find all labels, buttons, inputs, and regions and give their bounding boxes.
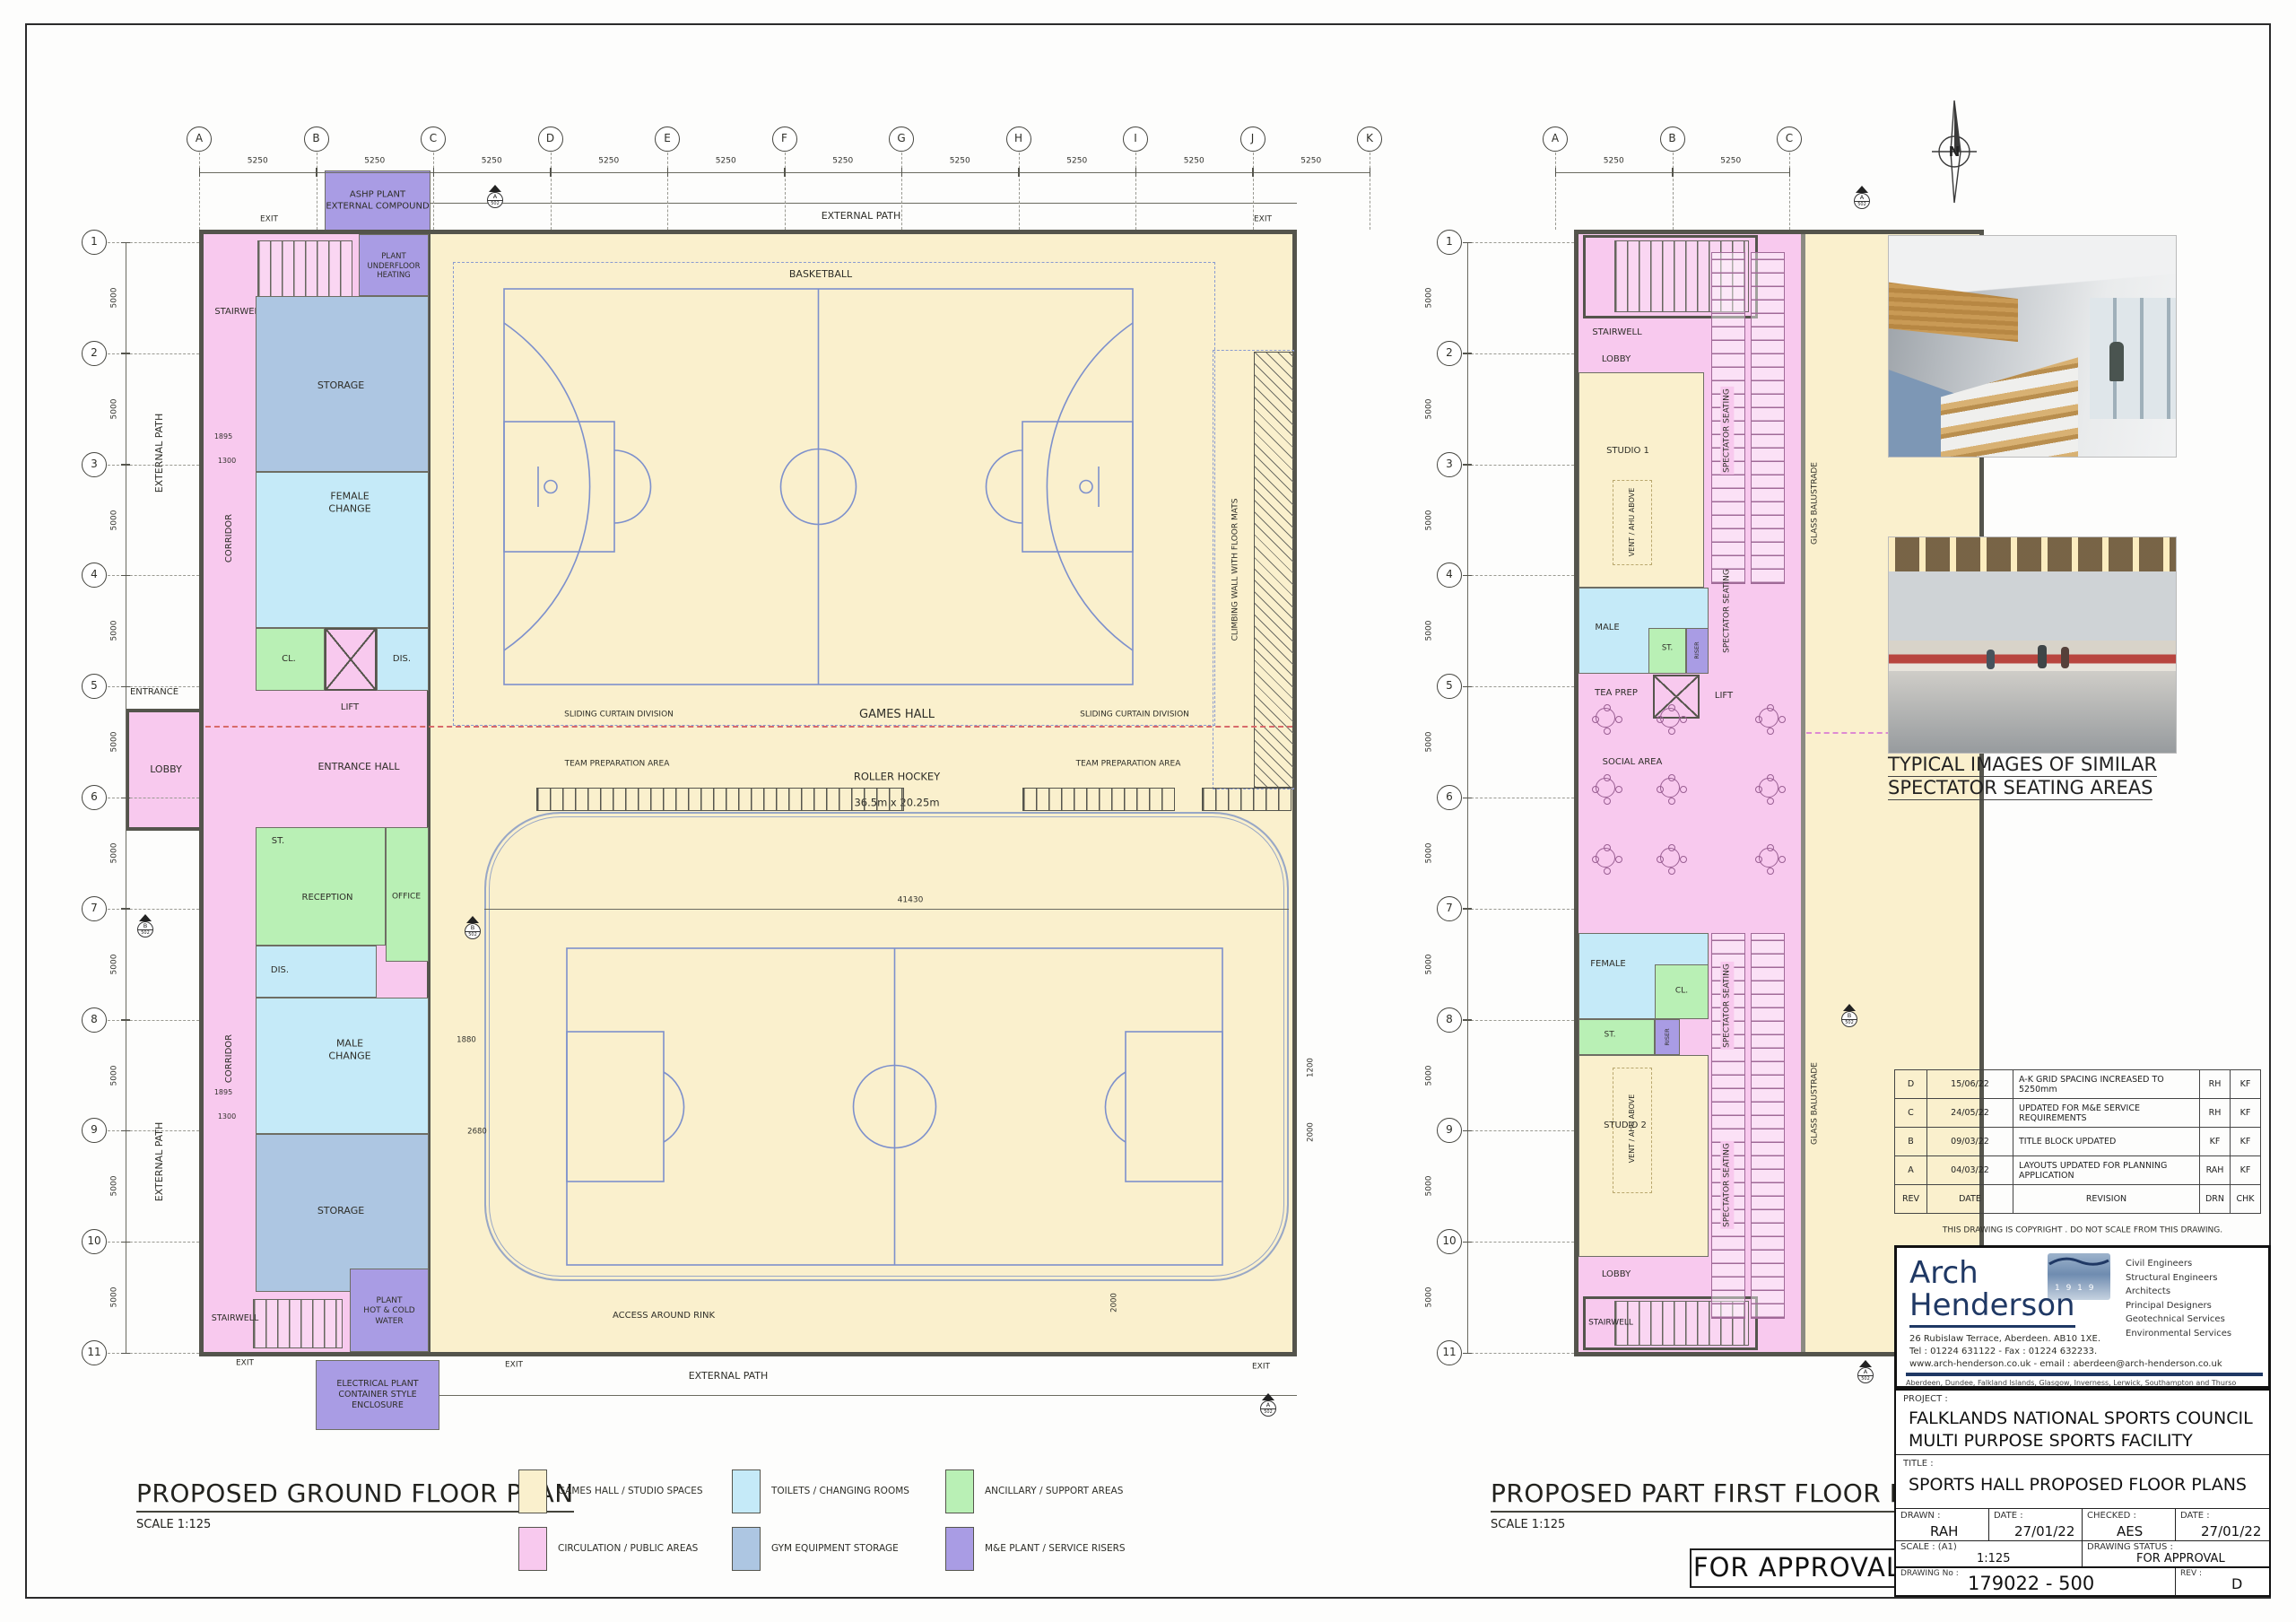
section-marker-tri-3 bbox=[1262, 1393, 1274, 1400]
ff-social-chair-1-1-2 bbox=[1668, 774, 1675, 781]
gf-grid-col-B: B bbox=[304, 126, 329, 152]
firm-web: www.arch-henderson.co.uk - email : aberd… bbox=[1909, 1359, 2222, 1369]
gf-dim-2680: 2680 bbox=[467, 1128, 487, 1138]
photo1-windows bbox=[2090, 298, 2176, 419]
gf-grid-row-7: 7 bbox=[82, 896, 107, 921]
tb-checked-value: AES bbox=[2117, 1523, 2143, 1539]
firm-name-arch: Arch bbox=[1909, 1255, 1979, 1291]
gf-plant-hot-cold-label: PLANT HOT & COLD WATER bbox=[363, 1296, 414, 1327]
ff-grid-rowline-7 bbox=[1471, 1020, 1574, 1021]
gf-grid-col-A: A bbox=[187, 126, 212, 152]
firm-service-4: Geotechnical Services bbox=[2126, 1312, 2231, 1327]
ff-studio1-label: STUDIO 1 bbox=[1606, 446, 1649, 458]
gf-grid-dim-8: 5250 bbox=[1184, 156, 1205, 166]
ff-grid-rowline-6 bbox=[1471, 909, 1574, 910]
ff-grid-dim-0: 5250 bbox=[1604, 156, 1624, 166]
gf-games-hall-label: GAMES HALL bbox=[859, 708, 935, 722]
photo2-ceiling-lights bbox=[1889, 537, 2176, 571]
for-approval-stamp: FOR APPROVAL bbox=[1690, 1548, 1905, 1588]
gf-grid-rowtick-1 bbox=[121, 353, 130, 354]
ff-grid-rowtick-10 bbox=[1463, 1353, 1472, 1355]
gf-plan-scale: SCALE 1:125 bbox=[136, 1518, 211, 1531]
rev-cell-1-2: UPDATED FOR M&E SERVICE REQUIREMENTS bbox=[2013, 1099, 2200, 1128]
ff-grid-rowtick-2 bbox=[1463, 464, 1472, 466]
ff-social-chair-2-0-3 bbox=[1604, 868, 1611, 875]
ff-grid-rowtick-4 bbox=[1463, 686, 1472, 688]
ff-grid-rowdim-6: 5000 bbox=[1424, 954, 1434, 974]
tb-project-row: PROJECT : FALKLANDS NATIONAL SPORTS COUN… bbox=[1896, 1391, 2269, 1455]
gf-grid-col-H: H bbox=[1006, 126, 1031, 152]
gf-grid-tick-5 bbox=[784, 168, 786, 177]
ff-grid-row-10: 10 bbox=[1437, 1229, 1462, 1254]
ff-social-chair-1-0-2 bbox=[1604, 774, 1611, 781]
gf-stairwell-bottom-label: STAIRWELL bbox=[212, 1313, 259, 1324]
gf-dim-1895-bot: 1895 bbox=[214, 1088, 232, 1097]
gf-grid-col-G: G bbox=[889, 126, 914, 152]
gf-grid-colline-9 bbox=[1253, 153, 1254, 230]
firm-block: Arch 1 9 1 9 Henderson Civil EngineersSt… bbox=[1894, 1245, 2271, 1389]
ff-grid-rowdim-3: 5000 bbox=[1424, 621, 1434, 641]
gf-plan-title: PROPOSED GROUND FLOOR PLAN bbox=[136, 1478, 574, 1513]
ff-grid-row-9: 9 bbox=[1437, 1118, 1462, 1143]
gf-grid-col-E: E bbox=[655, 126, 680, 152]
rev-cell-1-0: C bbox=[1895, 1099, 1927, 1128]
gf-grid-row-8: 8 bbox=[82, 1007, 107, 1033]
gf-climbing-wall-label: CLIMBING WALL WITH FLOOR MATS bbox=[1231, 499, 1240, 641]
ff-social-chair-2-0-2 bbox=[1604, 844, 1611, 851]
gf-grid-row-6: 6 bbox=[82, 785, 107, 810]
rev-cell-0-2: A-K GRID SPACING INCREASED TO 5250mm bbox=[2013, 1070, 2200, 1099]
marker-letter: A bbox=[488, 193, 502, 200]
ff-lobby-top-label: LOBBY bbox=[1602, 354, 1631, 366]
ff-social-chair-2-0-0 bbox=[1592, 856, 1599, 863]
rev-cell-3-3: RAH bbox=[2200, 1156, 2231, 1185]
gf-entrance-label: ENTRANCE bbox=[130, 687, 178, 699]
ff-grid-rowline-3 bbox=[1471, 575, 1574, 576]
revision-table: D15/06/22A-K GRID SPACING INCREASED TO 5… bbox=[1894, 1069, 2261, 1214]
ff-grid-tick-1 bbox=[1672, 168, 1674, 177]
gf-grid-rowtick-2 bbox=[121, 464, 130, 466]
tb-dwg-cell: DRAWING No : 179022 - 500 bbox=[1896, 1568, 2176, 1596]
firm-name-henderson: Henderson bbox=[1909, 1287, 2075, 1328]
firm-service-0: Civil Engineers bbox=[2126, 1257, 2231, 1271]
firm-service-5: Environmental Services bbox=[2126, 1327, 2231, 1341]
gf-access-around-rink: ACCESS AROUND RINK bbox=[613, 1311, 715, 1322]
rev-cell-2-3: KF bbox=[2200, 1128, 2231, 1156]
gf-basketball-label: BASKETBALL bbox=[789, 268, 852, 281]
gf-grid-dim-5: 5250 bbox=[832, 156, 853, 166]
gf-cl-top-label: CL. bbox=[282, 654, 296, 666]
ff-grid-row-8: 8 bbox=[1437, 1007, 1462, 1033]
tb-drawn-value: RAH bbox=[1930, 1523, 1958, 1539]
ff-social-chair-1-2-2 bbox=[1767, 774, 1774, 781]
spectator-seating-photo-2 bbox=[1888, 536, 2177, 754]
gf-grid-rowtick-4 bbox=[121, 686, 130, 688]
gf-grid-row-3: 3 bbox=[82, 452, 107, 477]
gf-dim-1300-top: 1300 bbox=[218, 457, 236, 466]
ff-social-chair-0-2-1 bbox=[1779, 716, 1786, 723]
svg-text:N: N bbox=[1949, 144, 1961, 160]
legend-label-4: GYM EQUIPMENT STORAGE bbox=[771, 1543, 899, 1554]
ff-spectator-label-2: SPECTATOR SEATING bbox=[1722, 569, 1732, 653]
firm-logo-wave bbox=[2048, 1253, 2110, 1271]
gf-grid-rowdim-7: 5000 bbox=[109, 1065, 119, 1086]
ff-lobby-bottom-label: LOBBY bbox=[1602, 1269, 1631, 1281]
gf-grid-colline-3 bbox=[551, 153, 552, 230]
ff-social-chair-2-2-1 bbox=[1779, 856, 1786, 863]
firm-service-2: Architects bbox=[2126, 1285, 2231, 1299]
ff-glass-balustrade-wall bbox=[1801, 234, 1805, 1352]
ff-social-chair-2-1-3 bbox=[1668, 868, 1675, 875]
ff-tea-prep-label: TEA PREP bbox=[1595, 688, 1638, 700]
ff-social-chair-0-1-3 bbox=[1668, 728, 1675, 735]
gf-lift-label: LIFT bbox=[341, 702, 359, 714]
ff-social-chair-0-0-0 bbox=[1592, 716, 1599, 723]
tb-date2-value: 27/01/22 bbox=[2201, 1523, 2261, 1539]
ff-st-2 bbox=[1578, 1019, 1655, 1055]
ff-grid-row-1: 1 bbox=[1437, 230, 1462, 255]
gf-grid-tick-1 bbox=[316, 168, 317, 177]
section-marker-circle-6: A502 bbox=[1857, 1367, 1874, 1383]
ff-grid-tick-0 bbox=[1555, 168, 1557, 177]
ff-grid-rowtick-9 bbox=[1463, 1242, 1472, 1243]
gf-bench-1 bbox=[536, 788, 904, 811]
tb-checked-label: CHECKED : bbox=[2087, 1511, 2136, 1521]
gf-grid-colline-1 bbox=[317, 153, 317, 230]
ff-grid-rowdim-0: 5000 bbox=[1424, 287, 1434, 308]
legend-label-5: M&E PLANT / SERVICE RISERS bbox=[985, 1543, 1126, 1554]
firm-tel: Tel : 01224 631122 - Fax : 01224 632233. bbox=[1909, 1347, 2097, 1356]
gf-grid-tick-10 bbox=[1370, 168, 1371, 177]
gf-grid-tick-4 bbox=[667, 168, 669, 177]
tb-status-cell: DRAWING STATUS : FOR APPROVAL bbox=[2083, 1541, 2270, 1566]
ff-social-chair-0-2-0 bbox=[1755, 716, 1762, 723]
legend-swatch-4 bbox=[732, 1527, 761, 1571]
marker-number: 502 bbox=[1842, 1019, 1857, 1025]
rev-cell-0-3: RH bbox=[2200, 1070, 2231, 1099]
rink-court bbox=[565, 946, 1224, 1267]
section-marker-tri-0 bbox=[139, 914, 152, 921]
ff-social-area-label: SOCIAL AREA bbox=[1603, 757, 1663, 769]
firm-service-3: Principal Designers bbox=[2126, 1299, 2231, 1313]
marker-number: 502 bbox=[465, 931, 480, 937]
tb-date1-cell: DATE : 27/01/22 bbox=[1989, 1509, 2083, 1540]
tb-scale-row: SCALE : (A1) 1:125 DRAWING STATUS : FOR … bbox=[1896, 1541, 2269, 1568]
ff-st-2-label: ST. bbox=[1604, 1030, 1615, 1040]
rev-cell-3-4: KF bbox=[2231, 1156, 2261, 1185]
gf-grid-rowtick-7 bbox=[121, 1019, 130, 1021]
ff-grid-rowline-9 bbox=[1471, 1242, 1574, 1243]
rev-cell-2-0: B bbox=[1895, 1128, 1927, 1156]
rev-header-3: DRN bbox=[2200, 1185, 2231, 1214]
tb-date2-label: DATE : bbox=[2180, 1511, 2210, 1521]
photo2-wall-band bbox=[1889, 641, 2176, 671]
photo1-benches bbox=[1941, 357, 2079, 457]
rev-cell-0-1: 15/06/22 bbox=[1927, 1070, 2013, 1099]
section-marker-circle-5: B502 bbox=[1841, 1011, 1857, 1027]
firm-offices: Aberdeen, Dundee, Falkland Islands, Glas… bbox=[1906, 1379, 2236, 1387]
ff-grid-row-6: 6 bbox=[1437, 785, 1462, 810]
legend-label-2: ANCILLARY / SUPPORT AREAS bbox=[985, 1486, 1123, 1496]
ff-glass-balustrade-label-1: GLASS BALUSTRADE bbox=[1810, 462, 1820, 545]
gf-grid-colline-7 bbox=[1019, 153, 1020, 230]
marker-letter: A bbox=[1261, 1401, 1275, 1408]
rev-cell-3-1: 04/03/22 bbox=[1927, 1156, 2013, 1185]
ff-spectator-label-1: SPECTATOR SEATING bbox=[1720, 387, 1734, 475]
rev-cell-3-0: A bbox=[1895, 1156, 1927, 1185]
ff-glass-balustrade-label-2: GLASS BALUSTRADE bbox=[1810, 1062, 1820, 1145]
gf-dis-top-label: DIS. bbox=[393, 654, 411, 666]
rev-cell-1-3: RH bbox=[2200, 1099, 2231, 1128]
ff-male-label: MALE bbox=[1595, 623, 1619, 634]
gf-grid-rowtick-0 bbox=[121, 242, 130, 244]
gf-grid-rowdim-3: 5000 bbox=[109, 621, 119, 641]
rev-header-1: DATE bbox=[1927, 1185, 2013, 1214]
marker-letter: B bbox=[465, 924, 480, 931]
gf-grid-colline-4 bbox=[667, 153, 668, 230]
ff-social-chair-1-2-1 bbox=[1779, 786, 1786, 793]
gf-sliding-curtain-label-right: SLIDING CURTAIN DIVISION bbox=[1080, 710, 1189, 719]
gf-external-path-top-label: EXTERNAL PATH bbox=[822, 210, 901, 222]
gf-grid-col-C: C bbox=[421, 126, 446, 152]
firm-address: 26 Rubislaw Terrace, Aberdeen. AB10 1XE. bbox=[1909, 1334, 2100, 1344]
ff-grid-col-A: A bbox=[1543, 126, 1568, 152]
ff-cl-label: CL. bbox=[1675, 986, 1688, 996]
gf-lift-shaft bbox=[325, 628, 377, 691]
gf-grid-dim-7: 5250 bbox=[1066, 156, 1087, 166]
section-marker-tri-5 bbox=[1843, 1004, 1856, 1011]
gf-office-label: OFFICE bbox=[392, 892, 421, 902]
rev-cell-1-4: KF bbox=[2231, 1099, 2261, 1128]
gf-grid-rowtick-8 bbox=[121, 1130, 130, 1132]
gf-grid-row-5: 5 bbox=[82, 674, 107, 699]
gf-grid-colline-8 bbox=[1135, 153, 1136, 230]
gf-grid-rowtick-10 bbox=[121, 1353, 130, 1355]
ff-grid-colline-1 bbox=[1673, 153, 1674, 230]
gf-grid-dim-9: 5250 bbox=[1300, 156, 1321, 166]
gf-grid-tick-3 bbox=[550, 168, 552, 177]
tb-rev-value: D bbox=[2231, 1575, 2242, 1592]
rev-cell-2-4: KF bbox=[2231, 1128, 2261, 1156]
ff-vent-ahu-2-label: VENT / AHU ABOVE bbox=[1628, 1094, 1637, 1164]
legend-swatch-1 bbox=[732, 1469, 761, 1513]
tb-dwg-value: 179022 - 500 bbox=[1968, 1573, 2094, 1594]
photo2-floor bbox=[1889, 671, 2176, 753]
gf-exit-bottom-right: EXIT bbox=[1252, 1362, 1270, 1372]
title-block: PROJECT : FALKLANDS NATIONAL SPORTS COUN… bbox=[1894, 1389, 2271, 1597]
ff-social-chair-1-1-0 bbox=[1657, 786, 1664, 793]
gf-team-prep-right: TEAM PREPARATION AREA bbox=[1076, 759, 1181, 769]
gf-grid-dim-3: 5250 bbox=[598, 156, 619, 166]
gf-grid-rowtick-6 bbox=[121, 908, 130, 910]
ff-seating-top-row2 bbox=[1751, 252, 1785, 584]
tb-title-value: SPORTS HALL PROPOSED FLOOR PLANS bbox=[1909, 1475, 2247, 1495]
gf-building: STAIRWELL PLANT UNDERFLOOR HEATING STORA… bbox=[199, 230, 1297, 1356]
section-marker-circle-4: A502 bbox=[1854, 193, 1870, 209]
for-approval-text: FOR APPROVAL bbox=[1693, 1552, 1901, 1583]
firm-services: Civil EngineersStructural EngineersArchi… bbox=[2126, 1257, 2231, 1340]
ff-grid-rowtick-3 bbox=[1463, 575, 1472, 577]
gf-female-change-label: FEMALE CHANGE bbox=[328, 490, 370, 515]
gf-dim-41430-line bbox=[484, 909, 1289, 910]
section-marker-1: B502 bbox=[463, 921, 483, 941]
ff-female-label: FEMALE bbox=[1590, 959, 1625, 971]
gf-dis-mid-label: DIS. bbox=[271, 965, 289, 977]
section-marker-3: A502 bbox=[1258, 1399, 1278, 1418]
marker-number: 502 bbox=[1261, 1408, 1275, 1415]
gf-grid-rowdim-0: 5000 bbox=[109, 287, 119, 308]
ff-grid-row-5: 5 bbox=[1437, 674, 1462, 699]
gf-grid-rowdim-9: 5000 bbox=[109, 1287, 119, 1308]
gf-dim-2000-mid: 2000 bbox=[1110, 1293, 1120, 1312]
legend-label-1: TOILETS / CHANGING ROOMS bbox=[771, 1486, 909, 1496]
tb-scale-label: SCALE : (A1) bbox=[1900, 1542, 1957, 1552]
ff-grid-rowtick-5 bbox=[1463, 798, 1472, 799]
ff-social-chair-2-0-1 bbox=[1615, 856, 1622, 863]
gf-grid-rowdim-6: 5000 bbox=[109, 954, 119, 974]
gf-lobby-label: LOBBY bbox=[150, 763, 182, 776]
ff-social-chair-0-2-2 bbox=[1767, 704, 1774, 711]
legend-swatch-3 bbox=[518, 1527, 547, 1571]
rev-cell-0-4: KF bbox=[2231, 1070, 2261, 1099]
ff-stairwell-bottom-label: STAIRWELL bbox=[1588, 1318, 1633, 1328]
tb-date1-value: 27/01/22 bbox=[2014, 1523, 2074, 1539]
rev-cell-0-0: D bbox=[1895, 1070, 1927, 1099]
gf-grid-row-9: 9 bbox=[82, 1118, 107, 1143]
legend-label-3: CIRCULATION / PUBLIC AREAS bbox=[558, 1543, 698, 1554]
section-marker-5: B502 bbox=[1839, 1009, 1859, 1029]
gf-grid-colline-5 bbox=[785, 153, 786, 230]
marker-letter: A bbox=[1855, 194, 1869, 201]
tb-status-value: FOR APPROVAL bbox=[2136, 1552, 2225, 1565]
rev-header-0: REV bbox=[1895, 1185, 1927, 1214]
ff-social-chair-1-0-1 bbox=[1615, 786, 1622, 793]
ff-social-chair-0-1-0 bbox=[1657, 716, 1664, 723]
tb-title-row: TITLE : SPORTS HALL PROPOSED FLOOR PLANS bbox=[1896, 1455, 2269, 1509]
ff-vent-ahu-1-label: VENT / AHU ABOVE bbox=[1628, 488, 1637, 557]
gf-grid-rowtick-9 bbox=[121, 1242, 130, 1243]
gf-exit-bottom-mid: EXIT bbox=[505, 1360, 523, 1370]
ff-riser-2-label: RISER bbox=[1664, 1028, 1671, 1045]
ff-social-chair-0-0-2 bbox=[1604, 704, 1611, 711]
gf-dim-1895-top: 1895 bbox=[214, 432, 232, 441]
ff-grid-rowdim-5: 5000 bbox=[1424, 842, 1434, 863]
gf-external-path-bottom-label: EXTERNAL PATH bbox=[689, 1370, 769, 1382]
section-marker-0: B502 bbox=[135, 920, 155, 939]
tb-project-line2: MULTI PURPOSE SPORTS FACILITY bbox=[1909, 1431, 2193, 1451]
gf-grid-dim-2: 5250 bbox=[482, 156, 502, 166]
tb-project-line1: FALKLANDS NATIONAL SPORTS COUNCIL bbox=[1909, 1408, 2253, 1428]
images-heading: TYPICAL IMAGES OF SIMILAR SPECTATOR SEAT… bbox=[1888, 754, 2157, 800]
tb-dwg-row: DRAWING No : 179022 - 500 REV : D bbox=[1896, 1568, 2269, 1596]
ff-social-chair-2-1-1 bbox=[1680, 856, 1687, 863]
gf-grid-tick-6 bbox=[901, 168, 903, 177]
legend-swatch-0 bbox=[518, 1469, 547, 1513]
ff-social-chair-2-2-3 bbox=[1767, 868, 1774, 875]
ff-grid-rowdim-2: 5000 bbox=[1424, 510, 1434, 530]
ff-plan-scale: SCALE 1:125 bbox=[1491, 1518, 1565, 1531]
section-marker-tri-2 bbox=[489, 185, 501, 192]
ff-social-chair-1-2-0 bbox=[1755, 786, 1762, 793]
gf-grid-col-D: D bbox=[538, 126, 563, 152]
gf-grid-tick-7 bbox=[1018, 168, 1020, 177]
ff-grid-rowline-0 bbox=[1471, 242, 1574, 243]
ff-grid-colline-2 bbox=[1789, 153, 1790, 230]
gf-dim-1880: 1880 bbox=[457, 1036, 476, 1046]
gf-grid-row-2: 2 bbox=[82, 341, 107, 366]
ff-social-chair-1-0-3 bbox=[1604, 798, 1611, 805]
section-marker-6: A502 bbox=[1856, 1365, 1875, 1385]
ff-grid-rowtick-7 bbox=[1463, 1019, 1472, 1021]
section-marker-tri-1 bbox=[466, 916, 479, 923]
gf-st-mid-label: ST. bbox=[272, 836, 284, 848]
gf-grid-dim-4: 5250 bbox=[716, 156, 736, 166]
section-marker-tri-6 bbox=[1859, 1360, 1872, 1367]
gf-corridor-top-label: CORRIDOR bbox=[224, 514, 236, 562]
gf-grid-row-1: 1 bbox=[82, 230, 107, 255]
ff-grid-rowline-4 bbox=[1471, 686, 1574, 687]
gf-male-change bbox=[256, 998, 429, 1134]
ff-grid-rowdim-8: 5000 bbox=[1424, 1176, 1434, 1197]
firm-rule bbox=[1906, 1373, 2263, 1376]
section-marker-tri-4 bbox=[1856, 186, 1868, 193]
gf-grid-rowtick-3 bbox=[121, 575, 130, 577]
ff-grid-row-11: 11 bbox=[1437, 1340, 1462, 1365]
ff-grid-col-B: B bbox=[1660, 126, 1685, 152]
ff-social-chair-0-1-1 bbox=[1680, 716, 1687, 723]
gf-grid-colline-0 bbox=[199, 153, 200, 230]
tb-drawn-label: DRAWN : bbox=[1900, 1511, 1940, 1521]
ff-social-chair-1-1-1 bbox=[1680, 786, 1687, 793]
gf-grid-colline-10 bbox=[1370, 153, 1370, 230]
gf-climbing-wall-hatch bbox=[1254, 352, 1294, 788]
tb-date1-label: DATE : bbox=[1994, 1511, 2023, 1521]
ff-riser-1-label: RISER bbox=[1693, 641, 1700, 658]
gf-sliding-curtain-line bbox=[205, 726, 1292, 728]
gf-reception-label: RECEPTION bbox=[301, 893, 352, 904]
marker-letter: A bbox=[1858, 1368, 1873, 1375]
gf-grid-col-I: I bbox=[1123, 126, 1148, 152]
gf-grid-row-11: 11 bbox=[82, 1340, 107, 1365]
legend-swatch-5 bbox=[945, 1527, 974, 1571]
spectator-seating-photo-1 bbox=[1888, 235, 2177, 458]
north-arrow-icon: N bbox=[1926, 97, 1982, 206]
gf-exit-top-right: EXIT bbox=[1254, 214, 1272, 224]
ff-grid-row-2: 2 bbox=[1437, 341, 1462, 366]
gf-grid-dim-0: 5250 bbox=[248, 156, 268, 166]
ff-plan-title: PROPOSED PART FIRST FLOOR PLAN bbox=[1491, 1478, 1957, 1513]
ff-grid-tick-2 bbox=[1789, 168, 1791, 177]
ff-social-chair-2-2-0 bbox=[1755, 856, 1762, 863]
gf-grid-rowdim-2: 5000 bbox=[109, 510, 119, 530]
rev-header-4: CHK bbox=[2231, 1185, 2261, 1214]
ff-st-1-label: ST. bbox=[1662, 644, 1673, 654]
section-marker-circle-2: A502 bbox=[487, 192, 503, 208]
photo2-figure-3 bbox=[1987, 650, 1995, 669]
ff-grid-rowline-5 bbox=[1471, 798, 1574, 798]
tb-rev-label: REV : bbox=[2180, 1569, 2202, 1578]
gf-external-path-bottom bbox=[430, 1356, 1297, 1396]
ff-social-chair-0-0-1 bbox=[1615, 716, 1622, 723]
gf-grid-tick-8 bbox=[1135, 168, 1137, 177]
gf-dim-2000-right: 2000 bbox=[1307, 1122, 1317, 1142]
gf-grid-rowdim-4: 5000 bbox=[109, 732, 119, 753]
ff-grid-rowdim-7: 5000 bbox=[1424, 1065, 1434, 1086]
tb-dwg-label: DRAWING No : bbox=[1900, 1569, 1959, 1578]
ff-social-chair-0-2-3 bbox=[1767, 728, 1774, 735]
marker-number: 502 bbox=[1855, 201, 1869, 207]
ff-grid-rowtick-1 bbox=[1463, 353, 1472, 354]
